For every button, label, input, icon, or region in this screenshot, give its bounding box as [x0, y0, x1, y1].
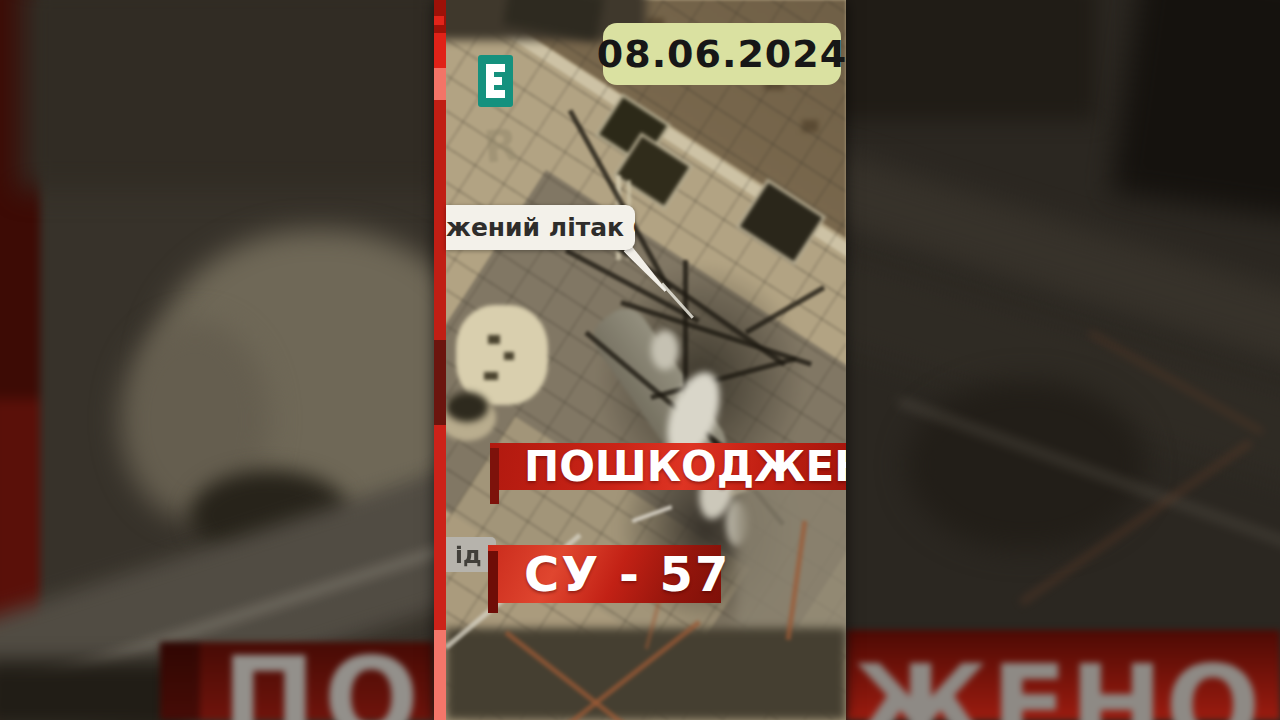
blur-shape — [1110, 0, 1280, 225]
blur-shape — [20, 0, 434, 190]
bottom-right-banner-blur: ЖЕНО — [846, 630, 1280, 720]
shelter-speck — [488, 335, 500, 344]
left-edge-stripe — [434, 0, 446, 720]
logo-glyph-part — [486, 77, 502, 85]
white-shelter — [456, 305, 548, 405]
model-banner-accent — [488, 551, 498, 613]
damaged-banner: ПОШКОДЖЕНО — [490, 443, 846, 490]
blur-shape — [846, 0, 1096, 120]
date-badge: 08.06.2024 — [603, 23, 841, 85]
background-letters: ЖЕНО — [852, 650, 1263, 720]
background-letters: ПО — [222, 642, 427, 720]
thumbnail-frame: ПО ЖЕНО — [0, 0, 1280, 720]
model-banner-text: СУ - 57 — [524, 546, 730, 602]
logo-red-bar — [434, 16, 444, 25]
blur-shape — [906, 380, 1146, 550]
damaged-banner-text: ПОШКОДЖЕНО — [524, 442, 846, 491]
image-watermark: R — [481, 118, 520, 172]
date-text: 08.06.2024 — [597, 32, 846, 76]
satellite-image: R — [446, 0, 846, 720]
video-frame[interactable]: R 08.06.2024 жений літак Су-57 ід в ПОШК… — [434, 0, 846, 720]
logo-glyph-part — [486, 90, 505, 98]
left-blur-panel: ПО — [0, 0, 434, 720]
shelter-speck — [504, 352, 514, 360]
model-banner: СУ - 57 — [488, 545, 721, 603]
callout-text: жений літак Су-57 — [446, 213, 635, 242]
logo-glyph-part — [486, 64, 505, 72]
shelter-speck — [484, 372, 498, 380]
damaged-banner-accent — [490, 448, 499, 504]
shelter-shadow — [446, 392, 488, 422]
bottom-left-banner-blur: ПО — [160, 642, 434, 720]
callout-label: жений літак Су-57 — [446, 205, 635, 250]
espreso-e-icon — [478, 55, 513, 107]
right-blur-panel: ЖЕНО — [846, 0, 1280, 720]
foam-patch — [651, 330, 679, 370]
